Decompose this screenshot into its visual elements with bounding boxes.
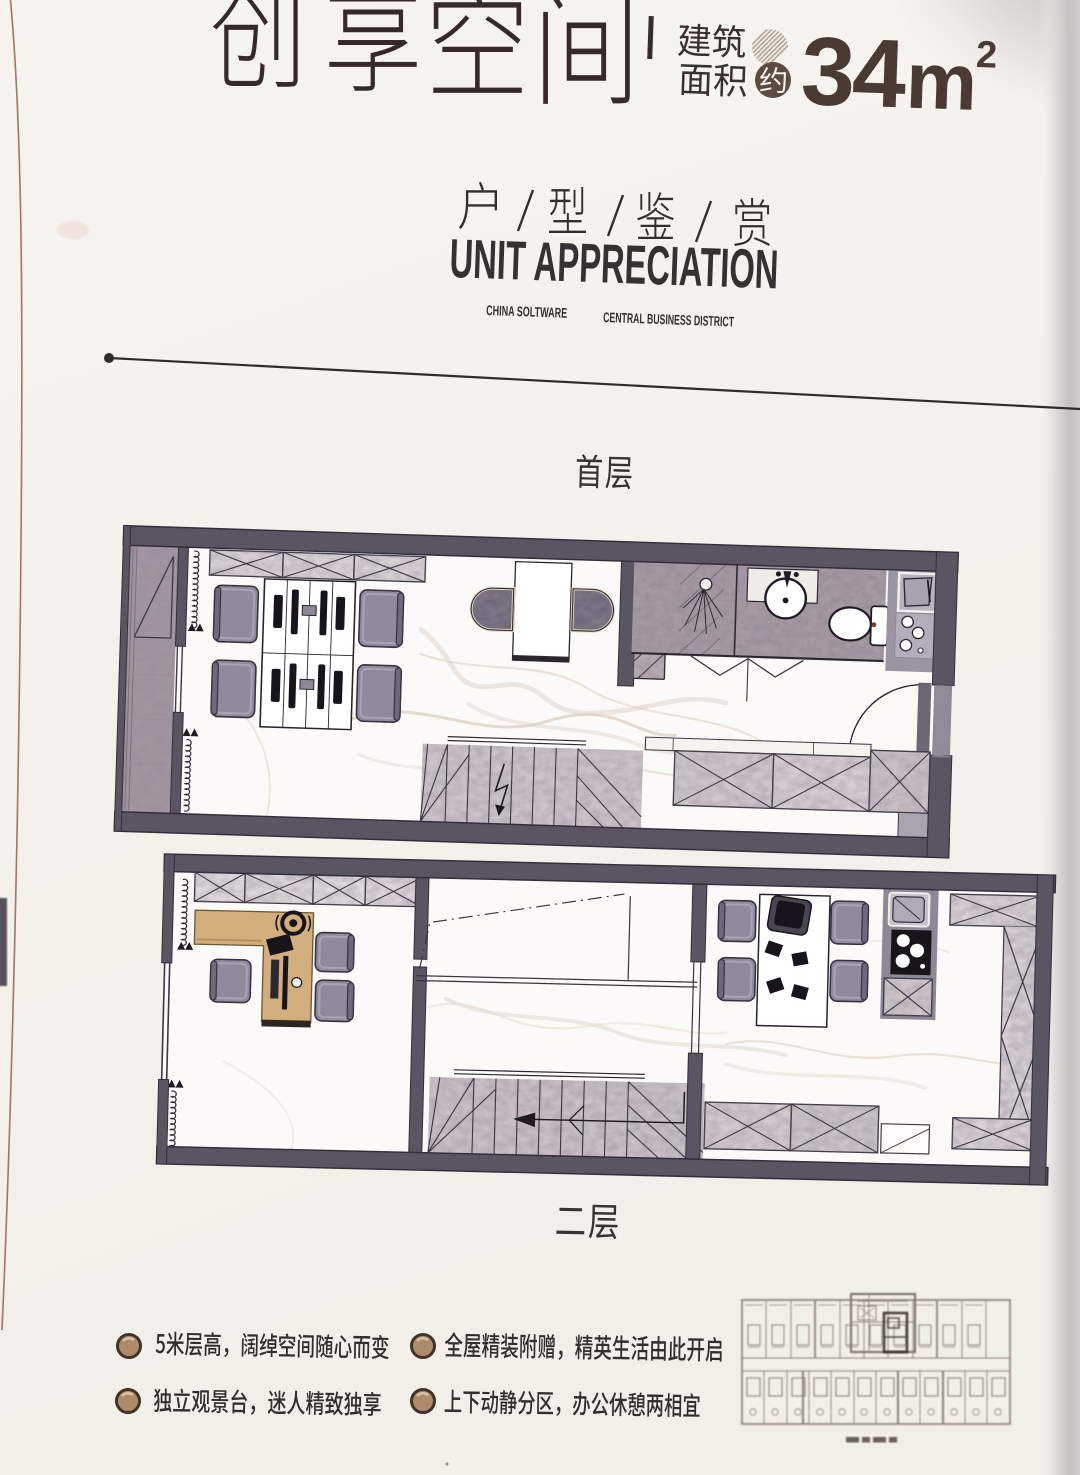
svg-text:m: m xyxy=(905,36,979,127)
svg-text:CHINA SOLTWARE: CHINA SOLTWARE xyxy=(486,302,568,321)
svg-text:34: 34 xyxy=(799,16,908,129)
svg-text:UNIT APPRECIATION: UNIT APPRECIATION xyxy=(449,227,780,300)
svg-text:2: 2 xyxy=(975,34,998,77)
